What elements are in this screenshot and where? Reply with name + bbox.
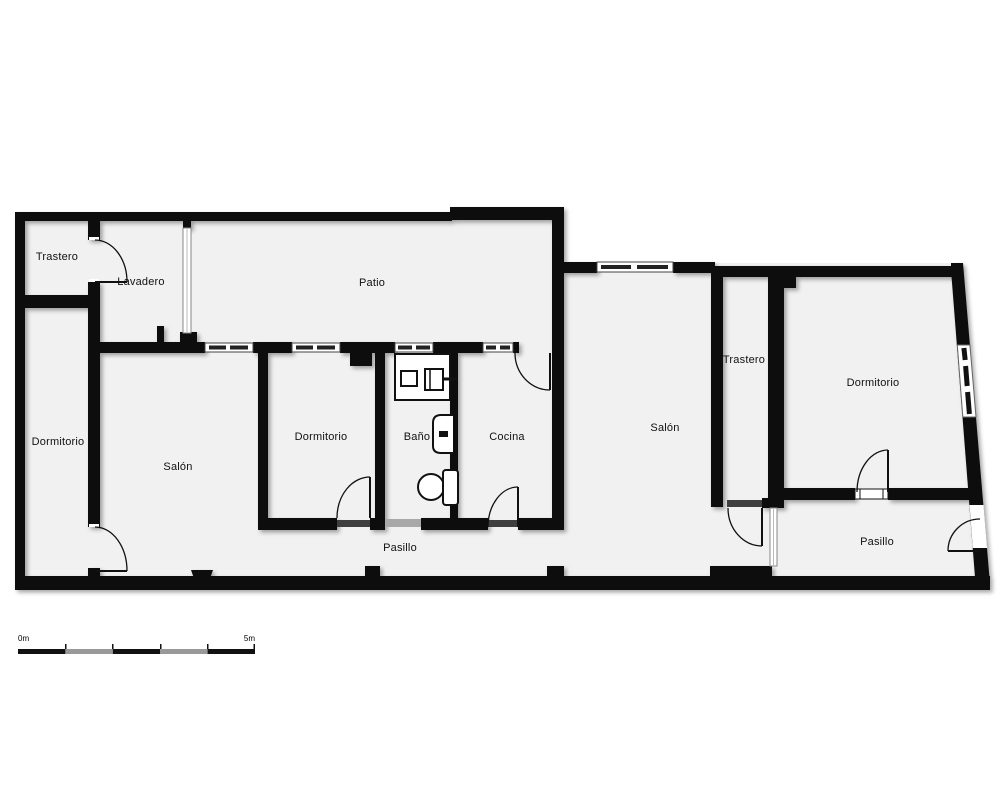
room-label-dormitorio-right: Dormitorio (847, 377, 900, 389)
wall-left (15, 212, 25, 590)
window-salon-left (205, 343, 253, 352)
room-label-lavadero: Lavadero (117, 276, 164, 288)
wall-cocina-bottom1 (458, 518, 488, 530)
wall-top-patio-right (450, 207, 564, 220)
wall-a-upper (88, 212, 100, 240)
room-label-pasillo-left: Pasillo (383, 542, 417, 554)
wall-dormright-bottom2 (888, 488, 976, 500)
threshold-dormitorio-right (855, 489, 888, 499)
scale-tick (65, 644, 67, 649)
wall-cocina-bottom2 (518, 518, 564, 530)
wall-dormmid-bottom2 (370, 518, 385, 530)
wall-chimney-notch (350, 353, 372, 366)
wall-dormright-step (784, 277, 796, 288)
wall-salonright-top2 (673, 262, 715, 273)
scale-segment (113, 649, 160, 654)
scale-end-label: 5m (244, 634, 255, 643)
room-label-patio: Patio (359, 277, 385, 289)
wall-pillar-1 (365, 566, 380, 578)
scale-tick (254, 644, 256, 649)
bidet-icon (433, 415, 453, 453)
scale-segment (18, 649, 65, 654)
window-salon-right (597, 262, 673, 272)
wall-top-left (15, 212, 452, 221)
wall-stub-a (88, 568, 100, 578)
wall-a-main (88, 282, 100, 527)
window-cocina (483, 343, 513, 352)
scale-start-label: 0m (18, 634, 29, 643)
building-footprint (15, 207, 990, 588)
vanity-cabinet-icon (401, 371, 417, 386)
threshold-dormitorio-middle (337, 520, 370, 527)
wall-b-1 (88, 342, 205, 353)
window-lavadero-patio (183, 228, 191, 333)
wall-lavadero-stub (157, 326, 164, 343)
room-label-salon-right: Salón (650, 422, 679, 434)
wall-trastero2-left (711, 266, 723, 507)
room-label-pasillo-right: Pasillo (860, 536, 894, 548)
scale-segment (208, 649, 255, 654)
room-label-salon-left: Salón (163, 461, 192, 473)
window-trastero2-pasillo (770, 508, 777, 566)
wall-bano-bottom (421, 518, 458, 530)
room-label-trastero-top-left: Trastero (36, 251, 78, 263)
wall-chunk-alcove (710, 566, 772, 578)
wall-salonleft-dormmid (258, 343, 268, 530)
wall-b-3 (340, 342, 395, 353)
wall-dormmid-bano (375, 343, 385, 530)
window-dormitorio-middle (292, 343, 340, 352)
threshold-trastero2 (727, 500, 762, 507)
scale-tick (207, 644, 209, 649)
wall-bottom (15, 576, 990, 590)
floor-plan-canvas: Trastero Lavadero Patio Dormitorio Salón… (0, 0, 1000, 800)
wall-trastero2-right (768, 266, 784, 502)
wall-dormright-bottom1 (777, 488, 855, 500)
wall-central-vertical (552, 207, 564, 530)
scale-segment (160, 649, 207, 654)
room-label-trastero-right: Trastero (723, 354, 765, 366)
wall-b-5 (513, 342, 519, 353)
wall-salonright-top1 (552, 262, 597, 273)
room-label-cocina: Cocina (489, 431, 524, 443)
sliding-door-bano (385, 519, 421, 527)
wall-trastero1-bottom (15, 295, 100, 308)
scale-segment (65, 649, 112, 654)
threshold-cocina (488, 520, 518, 527)
wall-pillar-2 (547, 566, 564, 578)
scale-tick (160, 644, 162, 649)
scale-bar (18, 644, 255, 654)
wall-lavwin-cap-top (183, 212, 191, 229)
floor-plan-drawing (0, 0, 1000, 800)
room-label-dormitorio-left: Dormitorio (32, 436, 85, 448)
window-bano (395, 343, 433, 352)
wall-right-top (711, 266, 957, 277)
wall-dormmid-bottom (258, 518, 337, 530)
scale-tick (112, 644, 114, 649)
room-label-bano: Baño (404, 431, 431, 443)
room-label-dormitorio-middle: Dormitorio (295, 431, 348, 443)
